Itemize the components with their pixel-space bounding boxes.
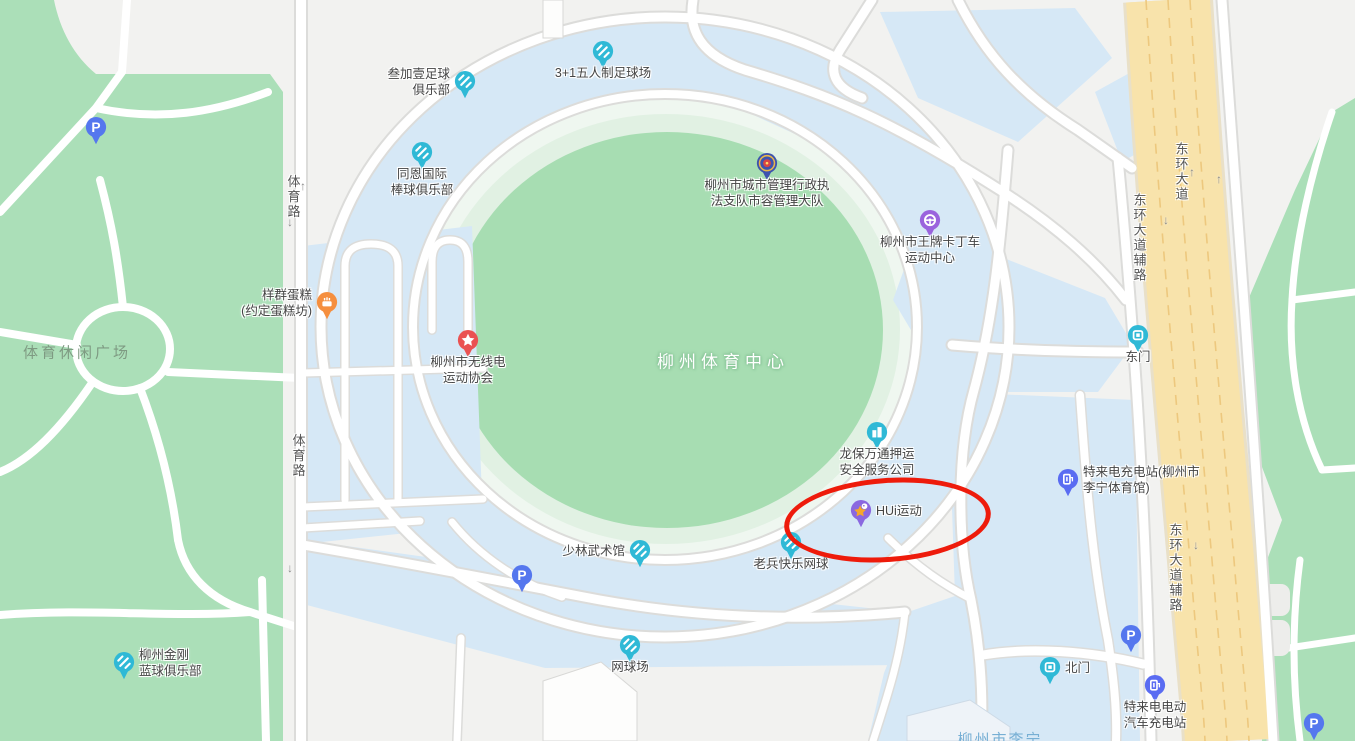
poi-label: 3+1五人制足球场 [555,65,651,81]
poi-label: 特来电电动汽车充电站 [1124,699,1187,731]
poi-label: 东门 [1125,349,1150,365]
area-label-liuzhou-lining-stadium: 柳州市李宁 [957,729,1042,741]
traffic-direction-arrow: ↑ [1216,172,1222,186]
parking-pin-icon[interactable]: P [511,564,533,594]
traffic-direction-arrow: ↑ [300,179,306,193]
sport-pin-icon[interactable] [454,70,476,100]
road-label-donghuan-frontage-north: 东环大道辅路 [1130,193,1149,283]
traffic-direction-arrow: ↓ [1163,213,1169,227]
poi-label: 柳州市城市管理行政执法支队市容管理大队 [704,177,829,209]
poi-label: 叁加壹足球俱乐部 [387,66,450,98]
poi-label: 柳州市王牌卡丁车运动中心 [880,234,980,266]
map-canvas[interactable]: 体育休闲广场柳州体育中心柳州市李宁 体育路体育路东环大道东环大道辅路东环大道辅路… [0,0,1355,741]
traffic-direction-arrow: ↑ [1189,165,1195,179]
traffic-direction-arrow: ↑ [301,441,307,455]
svg-text:P: P [1126,628,1135,643]
traffic-direction-arrow: ↓ [1193,538,1199,552]
parking-pin-icon[interactable]: P [85,116,107,146]
parking-pin-icon[interactable]: P [1303,712,1325,741]
poi-label: 老兵快乐网球 [753,556,828,572]
parking-pin-icon[interactable]: P [1120,624,1142,654]
area-label-liuzhou-sports-center: 柳州体育中心 [657,348,789,373]
poi-label: 特来电充电站(柳州市李宁体育馆) [1083,464,1200,496]
red-ellipse-annotation [781,471,993,569]
area-label-sports-leisure-plaza: 体育休闲广场 [23,342,131,363]
svg-text:P: P [1309,716,1318,731]
poi-label: 柳州市无线电运动协会 [430,354,505,386]
road-label-donghuan-frontage-south: 东环大道辅路 [1166,523,1185,613]
poi-label: 北门 [1065,660,1090,676]
svg-text:P: P [91,120,100,135]
poi-label: 同恩国际棒球俱乐部 [391,166,454,198]
svg-text:P: P [517,568,526,583]
road-label-donghuan-avenue: 东环大道 [1172,142,1191,202]
gate-pin-icon[interactable] [1039,656,1061,686]
sport-pin-icon[interactable] [113,651,135,681]
poi-label: 网球场 [611,659,649,675]
sport-pin-icon[interactable] [629,539,651,569]
traffic-direction-arrow: ↓ [287,215,293,229]
cake-pin-icon[interactable] [316,291,338,321]
poi-label: 龙保万通押运安全服务公司 [839,446,914,478]
poi-label: 样群蛋糕(约定蛋糕坊) [241,287,312,319]
traffic-direction-arrow: ↓ [287,561,293,575]
charge-pin-icon[interactable] [1057,468,1079,498]
poi-label: 柳州金刚蓝球俱乐部 [139,647,202,679]
poi-label: 少林武术馆 [562,543,625,559]
